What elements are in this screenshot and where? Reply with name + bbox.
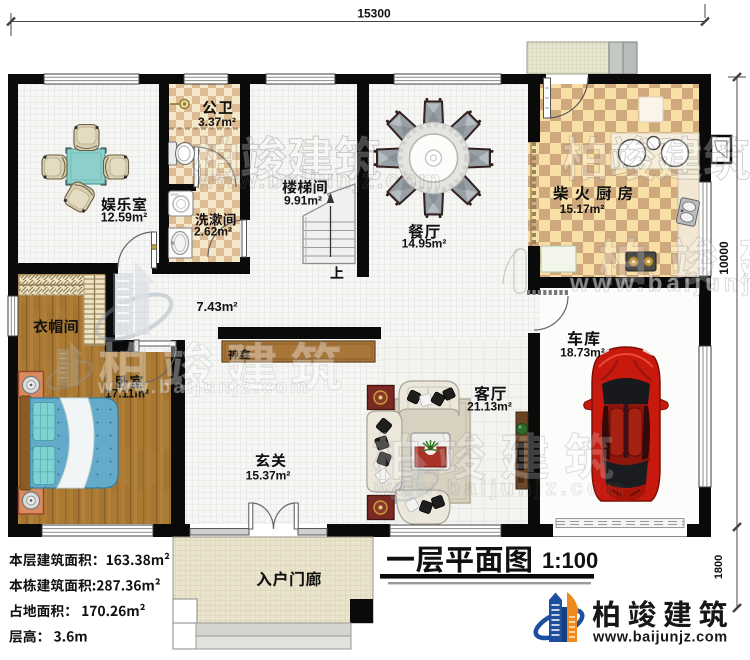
- svg-text:10000: 10000: [717, 241, 731, 275]
- svg-text:7.43m²: 7.43m²: [196, 299, 238, 314]
- svg-text:9.91m²: 9.91m²: [284, 194, 322, 208]
- svg-text:www.baijunjz.com: www.baijunjz.com: [592, 630, 728, 646]
- svg-text:14.95m²: 14.95m²: [402, 237, 447, 251]
- svg-text:1800: 1800: [713, 555, 725, 579]
- svg-text:www.baijunjz.com: www.baijunjz.com: [97, 377, 310, 398]
- svg-text:1:100: 1:100: [542, 548, 598, 573]
- svg-text:15.37m²: 15.37m²: [246, 469, 291, 483]
- svg-text:3.37m²: 3.37m²: [198, 115, 236, 129]
- svg-text:18.73m²: 18.73m²: [560, 346, 605, 360]
- svg-text:2.62m²: 2.62m²: [194, 225, 232, 239]
- svg-text:15.17m²: 15.17m²: [560, 202, 605, 216]
- svg-text:www.baijunjz.com: www.baijunjz.com: [194, 166, 443, 194]
- svg-text:12.59m²: 12.59m²: [101, 211, 148, 225]
- svg-text:15300: 15300: [357, 7, 391, 21]
- svg-text:21.13m²: 21.13m²: [467, 400, 512, 414]
